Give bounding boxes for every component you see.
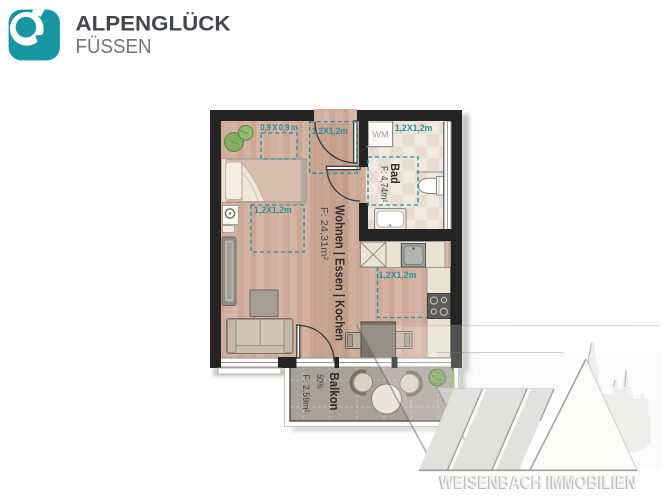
svg-text:F: 4,74m²: F: 4,74m² [378, 166, 389, 203]
svg-text:WM: WM [372, 130, 388, 140]
svg-text:1,2X1,2m: 1,2X1,2m [312, 126, 348, 136]
svg-text:F: 24,31m²: F: 24,31m² [318, 207, 330, 261]
svg-text:ALPENGLÜCK: ALPENGLÜCK [76, 13, 231, 36]
svg-text:1,2X1,2m: 1,2X1,2m [379, 270, 417, 280]
svg-text:FÜSSEN: FÜSSEN [76, 36, 152, 58]
svg-text:WEISENBACH IMMOBILIEN: WEISENBACH IMMOBILIEN [440, 471, 637, 492]
svg-text:Balkon: Balkon [327, 373, 341, 411]
svg-text:F: 2,59m²: F: 2,59m² [300, 375, 311, 414]
svg-text:50%: 50% [314, 374, 325, 389]
svg-text:Wohnen | Essen | Kochen: Wohnen | Essen | Kochen [333, 205, 348, 341]
svg-text:1,2X1,2m: 1,2X1,2m [254, 205, 292, 215]
svg-text:0,9 X 0,9 m: 0,9 X 0,9 m [260, 123, 298, 133]
svg-text:1,2X1,2m: 1,2X1,2m [395, 123, 433, 133]
